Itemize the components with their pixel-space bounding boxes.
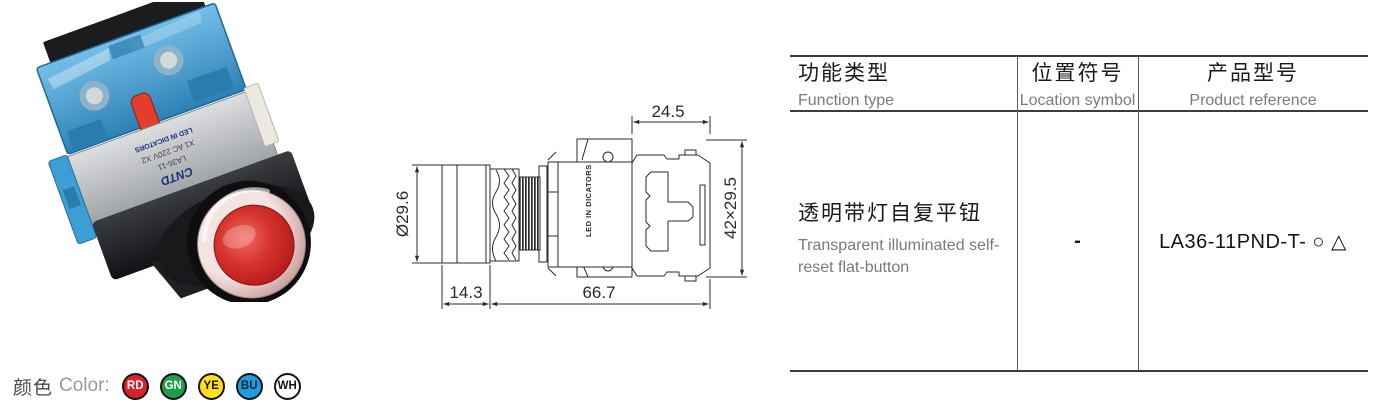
color-swatch-blue: BU (236, 373, 263, 400)
product-reference-value: LA36-11PND-T- ○ △ (1159, 229, 1347, 254)
table-row: 透明带灯自复平钮 Transparent illuminated self-re… (790, 112, 1368, 370)
contact-block-outline (632, 155, 710, 276)
cell-product-reference: LA36-11PND-T- ○ △ (1138, 112, 1368, 370)
header-product-reference-en: Product reference (1138, 90, 1368, 112)
color-legend: 颜色 Color: RD GN YE BU WH (13, 372, 312, 400)
product-photo: CNTD LA36-11 X1 AC 220V X2 LED IN DICATO… (18, 2, 318, 302)
color-label-en: Color: (59, 375, 110, 397)
header-location-symbol: 位置符号 Location symbol (1017, 57, 1138, 110)
cell-location-symbol: - (1017, 112, 1138, 370)
header-function-type: 功能类型 Function type (790, 57, 1017, 110)
header-product-reference: 产品型号 Product reference (1138, 57, 1368, 110)
dimension-drawing: LED IN DICATORS 24.5 Ø29.6 42×29.5 14.3 … (383, 93, 763, 315)
header-location-symbol-zh: 位置符号 (1017, 63, 1138, 84)
color-swatch-white: WH (274, 373, 301, 400)
dim-head-depth: 14.3 (449, 283, 482, 302)
table-header: 功能类型 Function type 位置符号 Location symbol … (790, 57, 1368, 112)
header-product-reference-zh: 产品型号 (1138, 63, 1368, 84)
color-label-zh: 颜色 (13, 373, 53, 400)
dim-block-width: 24.5 (651, 102, 684, 121)
header-function-type-zh: 功能类型 (798, 63, 1017, 84)
spec-table: 功能类型 Function type 位置符号 Location symbol … (790, 55, 1368, 372)
function-type-zh: 透明带灯自复平钮 (798, 203, 1017, 224)
function-type-en: Transparent illuminated self-reset flat-… (798, 235, 1012, 278)
dim-block-face: 42×29.5 (721, 177, 740, 239)
cell-function-type: 透明带灯自复平钮 Transparent illuminated self-re… (790, 112, 1017, 370)
color-swatch-green: GN (160, 373, 187, 400)
catalog-page: CNTD LA36-11 X1 AC 220V X2 LED IN DICATO… (0, 0, 1400, 419)
led-indicators-label: LED IN DICATORS (584, 164, 593, 237)
button-head-outline (442, 165, 490, 263)
location-symbol-value: - (1074, 230, 1081, 253)
color-swatch-red: RD (122, 373, 149, 400)
column-divider (1138, 57, 1139, 370)
dim-body-length: 66.7 (582, 283, 615, 302)
column-divider (1017, 57, 1018, 370)
header-function-type-en: Function type (798, 90, 1017, 112)
color-swatch-yellow: YE (198, 373, 225, 400)
header-location-symbol-en: Location symbol (1017, 90, 1138, 112)
thread-outline (519, 177, 540, 250)
dim-head-diameter: Ø29.6 (393, 191, 412, 237)
